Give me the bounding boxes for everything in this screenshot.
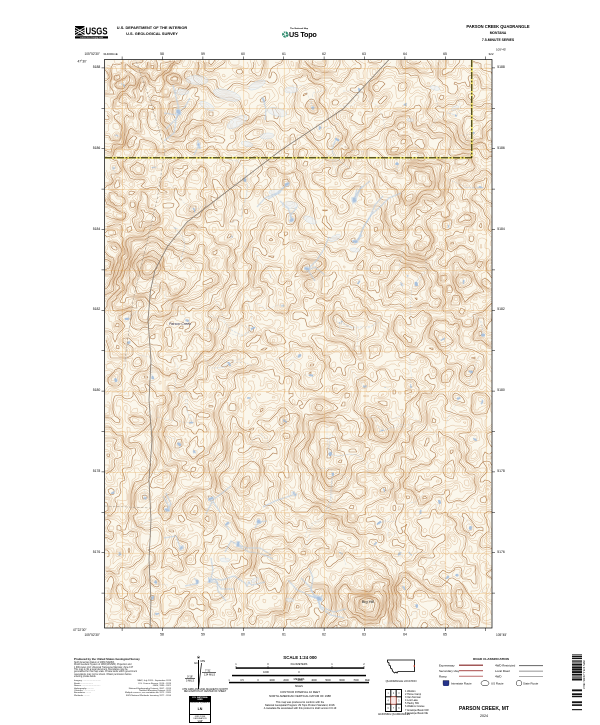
svg-text:65: 65 [443,633,447,637]
svg-text:Expressway: Expressway [439,664,455,668]
svg-text:1: 1 [228,679,230,682]
svg-text:4WD Restricted: 4WD Restricted [495,664,516,668]
svg-text:62: 62 [322,633,326,637]
svg-text:5182: 5182 [497,307,505,311]
svg-text:4WD: 4WD [495,674,501,678]
svg-text:1000: 1000 [263,670,269,674]
svg-text:0: 0 [267,662,269,666]
svg-text:2: 2 [363,662,365,666]
svg-text:5178: 5178 [497,469,505,473]
svg-text:MILES: MILES [295,684,303,688]
svg-text:1000: 1000 [269,679,275,682]
svg-text:105°52'30": 105°52'30" [85,52,100,56]
svg-text:3000: 3000 [297,679,303,682]
svg-text:47°30': 47°30' [78,60,87,64]
svg-text:5 MILS: 5 MILS [186,679,194,683]
svg-text:61: 61 [282,52,286,56]
svg-text:5184: 5184 [93,227,101,231]
svg-text:1: 1 [235,662,237,666]
svg-text:5184: 5184 [497,227,505,231]
svg-text:5180: 5180 [93,388,101,392]
svg-text:Local Road: Local Road [495,669,510,673]
svg-text:0: 0 [298,670,300,674]
svg-text:60: 60 [241,633,245,637]
svg-text:105°52'30": 105°52'30" [85,633,100,637]
svg-text:2000: 2000 [283,679,289,682]
svg-text:4000: 4000 [311,679,317,682]
svg-text:63: 63 [362,633,366,637]
svg-text:0: 0 [257,679,259,682]
svg-text:65: 65 [443,52,447,56]
svg-text:Secondary Hwy: Secondary Hwy [439,669,460,673]
svg-text:63: 63 [362,52,366,56]
svg-text:5182: 5182 [93,307,101,311]
svg-text:47°22'30": 47°22'30" [73,628,87,632]
svg-text:64: 64 [403,52,407,56]
svg-text:59: 59 [201,52,205,56]
svg-text:Interstate Route: Interstate Route [451,682,472,686]
svg-text:61: 61 [282,633,286,637]
svg-text:5188: 5188 [497,65,505,69]
svg-text:5186: 5186 [497,146,505,150]
svg-text:5176: 5176 [497,550,505,554]
svg-text:105°45': 105°45' [496,48,507,52]
svg-text:58: 58 [160,633,164,637]
svg-text:State Route: State Route [523,682,539,686]
svg-text:134 MILS: 134 MILS [204,673,215,677]
svg-text:7°31': 7°31' [205,668,211,672]
svg-text:US Route: US Route [491,682,504,686]
svg-text:64: 64 [403,633,407,637]
svg-text:GN: GN [194,661,199,665]
svg-text:KILOMETERS: KILOMETERS [291,662,308,666]
svg-text:5180: 5180 [497,388,505,392]
svg-text:62: 62 [322,52,326,56]
svg-text:5186: 5186 [93,146,101,150]
svg-text:7000: 7000 [353,679,359,682]
svg-text:105°45': 105°45' [496,633,507,637]
svg-text:60: 60 [241,52,245,56]
svg-text:322: 322 [488,52,493,56]
svg-text:5000: 5000 [325,679,331,682]
svg-text:6000: 6000 [339,679,345,682]
svg-text:0°18': 0°18' [187,674,193,678]
svg-text:5176: 5176 [93,550,101,554]
svg-text:59: 59 [201,633,205,637]
svg-text:MN: MN [201,659,206,663]
svg-text:5178: 5178 [93,469,101,473]
svg-text:58: 58 [160,52,164,56]
svg-text:1: 1 [331,662,333,666]
svg-text:FEET: FEET [365,679,370,682]
svg-text:5188: 5188 [93,65,101,69]
svg-text:0.5: 0.5 [240,679,244,682]
svg-text:314000mE: 314000mE [103,52,118,56]
svg-text:Ramp: Ramp [439,674,447,678]
